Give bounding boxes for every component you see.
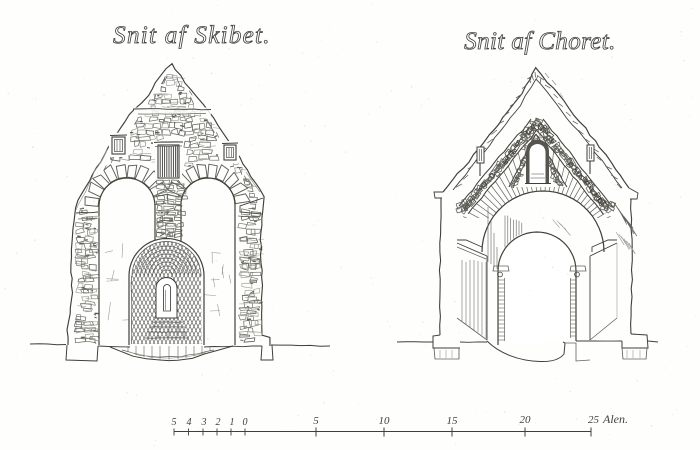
svg-text:20: 20 (520, 414, 532, 426)
svg-text:2: 2 (216, 417, 221, 428)
svg-text:Snit af Choret.: Snit af Choret. (464, 28, 616, 55)
svg-text:0: 0 (243, 417, 248, 428)
svg-text:Snit af Skibet.: Snit af Skibet. (113, 22, 271, 49)
svg-text:5: 5 (313, 415, 319, 427)
svg-text:15: 15 (447, 415, 459, 427)
svg-text:10: 10 (379, 415, 391, 427)
svg-text:25: 25 (588, 414, 600, 426)
svg-text:Alen.: Alen. (602, 412, 628, 426)
svg-text:1: 1 (230, 417, 235, 428)
svg-text:5: 5 (172, 417, 177, 428)
svg-text:3: 3 (201, 417, 207, 428)
svg-text:4: 4 (187, 417, 192, 428)
